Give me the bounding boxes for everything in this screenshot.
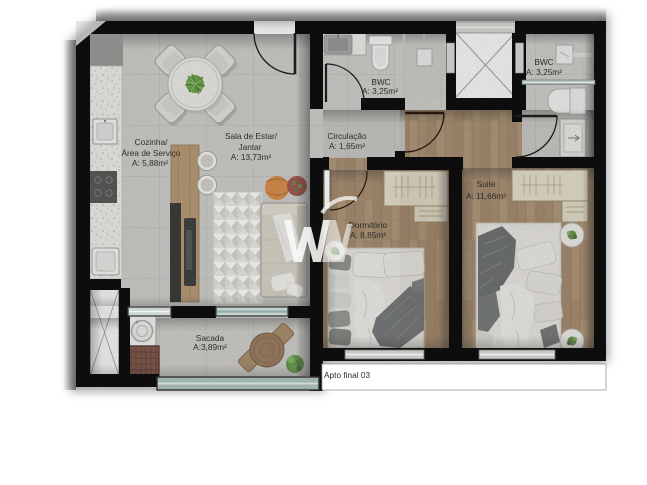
svg-text:A: 1,65m²: A: 1,65m² — [329, 141, 365, 151]
svg-text:Sala de Estar/: Sala de Estar/ — [225, 131, 278, 141]
svg-text:Dormitório: Dormitório — [349, 220, 388, 230]
svg-text:Apto final 03: Apto final 03 — [324, 370, 371, 380]
svg-text:Suite: Suite — [477, 179, 496, 189]
svg-text:Jantar: Jantar — [238, 142, 261, 152]
svg-text:A:3,89m²: A:3,89m² — [193, 342, 227, 352]
svg-text:A: 11,66m²: A: 11,66m² — [466, 191, 506, 201]
svg-text:Circulação: Circulação — [327, 131, 367, 141]
svg-text:BWC: BWC — [534, 57, 553, 67]
svg-text:A: 8,85m²: A: 8,85m² — [350, 230, 386, 240]
svg-text:Cozinha/: Cozinha/ — [135, 137, 168, 147]
svg-text:A: 3,25m²: A: 3,25m² — [362, 86, 398, 96]
svg-text:A: 13,73m²: A: 13,73m² — [231, 152, 272, 162]
svg-text:A: 3,25m²: A: 3,25m² — [526, 67, 562, 77]
svg-text:Área de Serviço: Área de Serviço — [121, 148, 180, 158]
svg-text:A: 5,88m²: A: 5,88m² — [132, 158, 168, 168]
